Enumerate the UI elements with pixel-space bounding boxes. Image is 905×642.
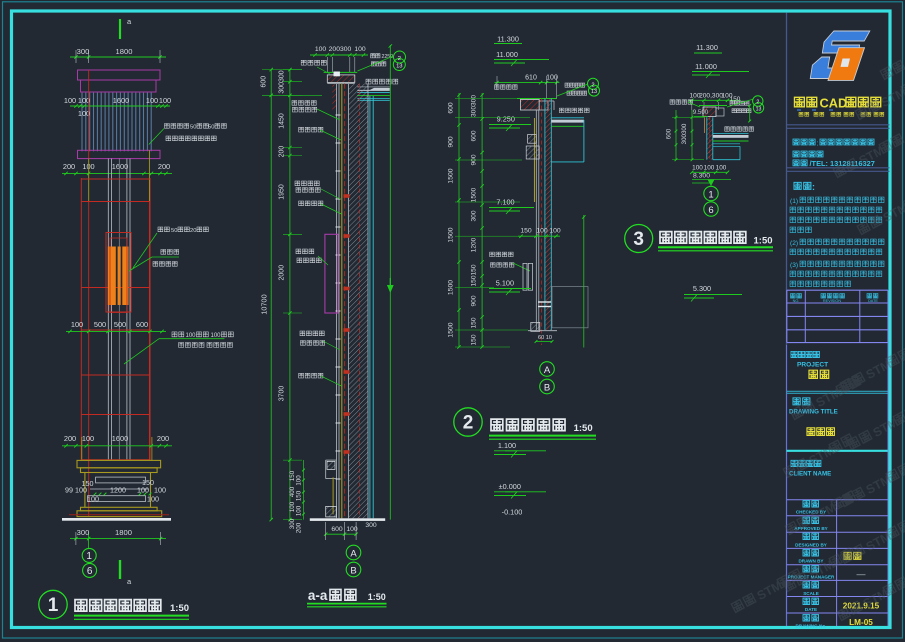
svg-text:1800: 1800 <box>115 528 132 537</box>
svg-text:100: 100 <box>87 495 99 504</box>
svg-text:100: 100 <box>546 75 558 82</box>
svg-text:LM-05: LM-05 <box>849 618 873 627</box>
svg-text:11.000: 11.000 <box>695 62 717 71</box>
svg-text:(1): (1) <box>790 198 798 205</box>
svg-text:8.300: 8.300 <box>693 173 710 180</box>
svg-text:13: 13 <box>591 89 597 95</box>
svg-text:PROJECT: PROJECT <box>797 362 828 369</box>
svg-text:CAD: CAD <box>820 96 848 111</box>
svg-text:1: 1 <box>86 551 92 562</box>
svg-text:A: A <box>544 365 551 376</box>
svg-text:300: 300 <box>77 47 90 56</box>
svg-text:200: 200 <box>296 522 303 533</box>
svg-text:1500: 1500 <box>471 187 478 202</box>
svg-text:600: 600 <box>666 128 673 139</box>
svg-text:SCALE: SCALE <box>803 591 819 596</box>
svg-text:100: 100 <box>296 475 303 486</box>
svg-text:3700: 3700 <box>278 386 285 402</box>
svg-text:9.500: 9.500 <box>693 109 709 116</box>
svg-text:100: 100 <box>147 495 159 504</box>
svg-text:300300: 300300 <box>471 95 478 117</box>
svg-text:REVISION: REVISION <box>823 299 841 303</box>
svg-text:DRAWING No.: DRAWING No. <box>796 624 827 629</box>
svg-text:2000: 2000 <box>278 265 285 281</box>
svg-text:6: 6 <box>708 205 713 216</box>
svg-text:a-a: a-a <box>308 588 328 603</box>
svg-text:3: 3 <box>633 229 644 250</box>
svg-text:100: 100 <box>159 96 171 105</box>
svg-text:1200: 1200 <box>471 237 478 252</box>
svg-text:200300: 200300 <box>329 46 352 53</box>
svg-text:DATE: DATE <box>868 299 878 303</box>
svg-text::: : <box>812 182 815 192</box>
svg-text:900: 900 <box>471 295 478 306</box>
svg-text:900: 900 <box>448 136 455 148</box>
svg-text:100: 100 <box>549 228 561 235</box>
svg-text:100: 100 <box>692 164 703 171</box>
svg-text:B: B <box>544 383 550 394</box>
svg-text:(2): (2) <box>790 240 798 247</box>
svg-text:100: 100 <box>716 164 727 171</box>
svg-text:1600: 1600 <box>112 162 128 171</box>
svg-text:1950: 1950 <box>278 184 285 200</box>
svg-text:13: 13 <box>756 106 762 112</box>
svg-text:—: — <box>857 569 866 579</box>
svg-text:APPROVED BY: APPROVED BY <box>794 526 827 531</box>
svg-text:100: 100 <box>146 96 158 105</box>
svg-text:1.100: 1.100 <box>498 441 516 450</box>
svg-text:100: 100 <box>154 485 166 494</box>
svg-text:B: B <box>350 566 356 577</box>
svg-text::: : <box>817 139 819 148</box>
svg-text:50: 50 <box>171 228 177 234</box>
svg-text:100: 100 <box>354 46 366 53</box>
svg-text:500: 500 <box>114 320 126 329</box>
svg-text:150: 150 <box>471 275 478 286</box>
svg-text:300300: 300300 <box>681 123 688 144</box>
svg-text:2: 2 <box>756 99 759 105</box>
svg-text:200,300: 200,300 <box>699 92 723 99</box>
svg-text:5.300: 5.300 <box>693 284 711 293</box>
svg-text:1500: 1500 <box>448 322 455 337</box>
svg-text:11.300: 11.300 <box>696 43 718 52</box>
svg-text:1:50: 1:50 <box>754 236 773 247</box>
svg-text:11.000: 11.000 <box>496 50 518 59</box>
svg-text:100: 100 <box>346 526 358 533</box>
svg-text:600: 600 <box>136 320 148 329</box>
svg-text:200: 200 <box>157 434 169 443</box>
svg-text:5.100: 5.100 <box>496 279 514 288</box>
svg-text:11.300: 11.300 <box>497 35 519 44</box>
svg-text:100: 100 <box>137 485 149 494</box>
svg-text:100: 100 <box>704 164 715 171</box>
svg-text:1600: 1600 <box>112 434 128 443</box>
svg-text:100: 100 <box>186 333 197 339</box>
svg-text:13: 13 <box>396 63 402 69</box>
svg-text:200: 200 <box>278 146 285 158</box>
svg-text:NO.: NO. <box>793 299 800 303</box>
svg-text:50: 50 <box>190 125 196 131</box>
svg-text:1200: 1200 <box>110 485 126 494</box>
svg-text:610: 610 <box>525 75 537 82</box>
svg-text:1500: 1500 <box>448 168 455 183</box>
svg-text:600: 600 <box>448 102 455 114</box>
svg-text:2: 2 <box>591 82 594 88</box>
svg-text:7.100: 7.100 <box>496 198 514 207</box>
svg-text:1600: 1600 <box>113 96 129 105</box>
svg-text:1:50: 1:50 <box>574 423 593 434</box>
svg-text:300: 300 <box>471 210 478 221</box>
svg-text:1500: 1500 <box>448 227 455 242</box>
svg-text:A: A <box>350 549 357 560</box>
svg-text:DESIGNED BY: DESIGNED BY <box>795 542 827 547</box>
svg-text:100: 100 <box>536 228 548 235</box>
svg-text:600: 600 <box>471 130 478 141</box>
svg-text:100: 100 <box>315 46 327 53</box>
svg-text:150: 150 <box>471 334 478 345</box>
svg-text:200: 200 <box>64 434 76 443</box>
svg-text:100: 100 <box>71 320 83 329</box>
svg-text:2: 2 <box>398 56 401 62</box>
svg-text:60 10: 60 10 <box>538 335 552 341</box>
svg-text:1: 1 <box>708 189 713 200</box>
svg-text:150: 150 <box>296 490 303 501</box>
svg-text:150: 150 <box>471 317 478 328</box>
svg-text:20: 20 <box>190 228 196 234</box>
svg-text:(3): (3) <box>790 262 798 269</box>
svg-text:150: 150 <box>471 264 478 275</box>
svg-text:1:50: 1:50 <box>368 592 386 602</box>
svg-text:1: 1 <box>48 595 59 616</box>
svg-text:2: 2 <box>463 413 474 434</box>
svg-text:6: 6 <box>87 566 93 577</box>
svg-text:10700: 10700 <box>260 294 269 314</box>
svg-text:50: 50 <box>208 125 214 131</box>
svg-text:200: 200 <box>63 162 75 171</box>
svg-text:100: 100 <box>211 333 222 339</box>
svg-text:-0.100: -0.100 <box>502 508 523 517</box>
svg-text:100: 100 <box>296 505 303 516</box>
svg-text:600: 600 <box>260 76 267 88</box>
svg-text:100: 100 <box>64 96 76 105</box>
svg-text:300: 300 <box>365 522 377 529</box>
svg-text:300300: 300300 <box>278 70 285 93</box>
svg-text:9.250: 9.250 <box>497 115 515 124</box>
svg-text:600: 600 <box>331 526 343 533</box>
svg-text:99 100: 99 100 <box>65 485 87 494</box>
svg-text:300: 300 <box>77 528 90 537</box>
svg-text:1500: 1500 <box>448 280 455 295</box>
svg-text:150: 150 <box>520 228 532 235</box>
svg-text:500: 500 <box>94 320 106 329</box>
svg-text:1:50: 1:50 <box>170 603 189 614</box>
svg-text:200: 200 <box>158 162 170 171</box>
svg-text:1450: 1450 <box>278 113 285 129</box>
svg-text:±0.000: ±0.000 <box>499 482 521 491</box>
svg-text:1800: 1800 <box>116 47 133 56</box>
svg-text:DATE: DATE <box>805 607 817 612</box>
svg-text:100: 100 <box>82 434 94 443</box>
